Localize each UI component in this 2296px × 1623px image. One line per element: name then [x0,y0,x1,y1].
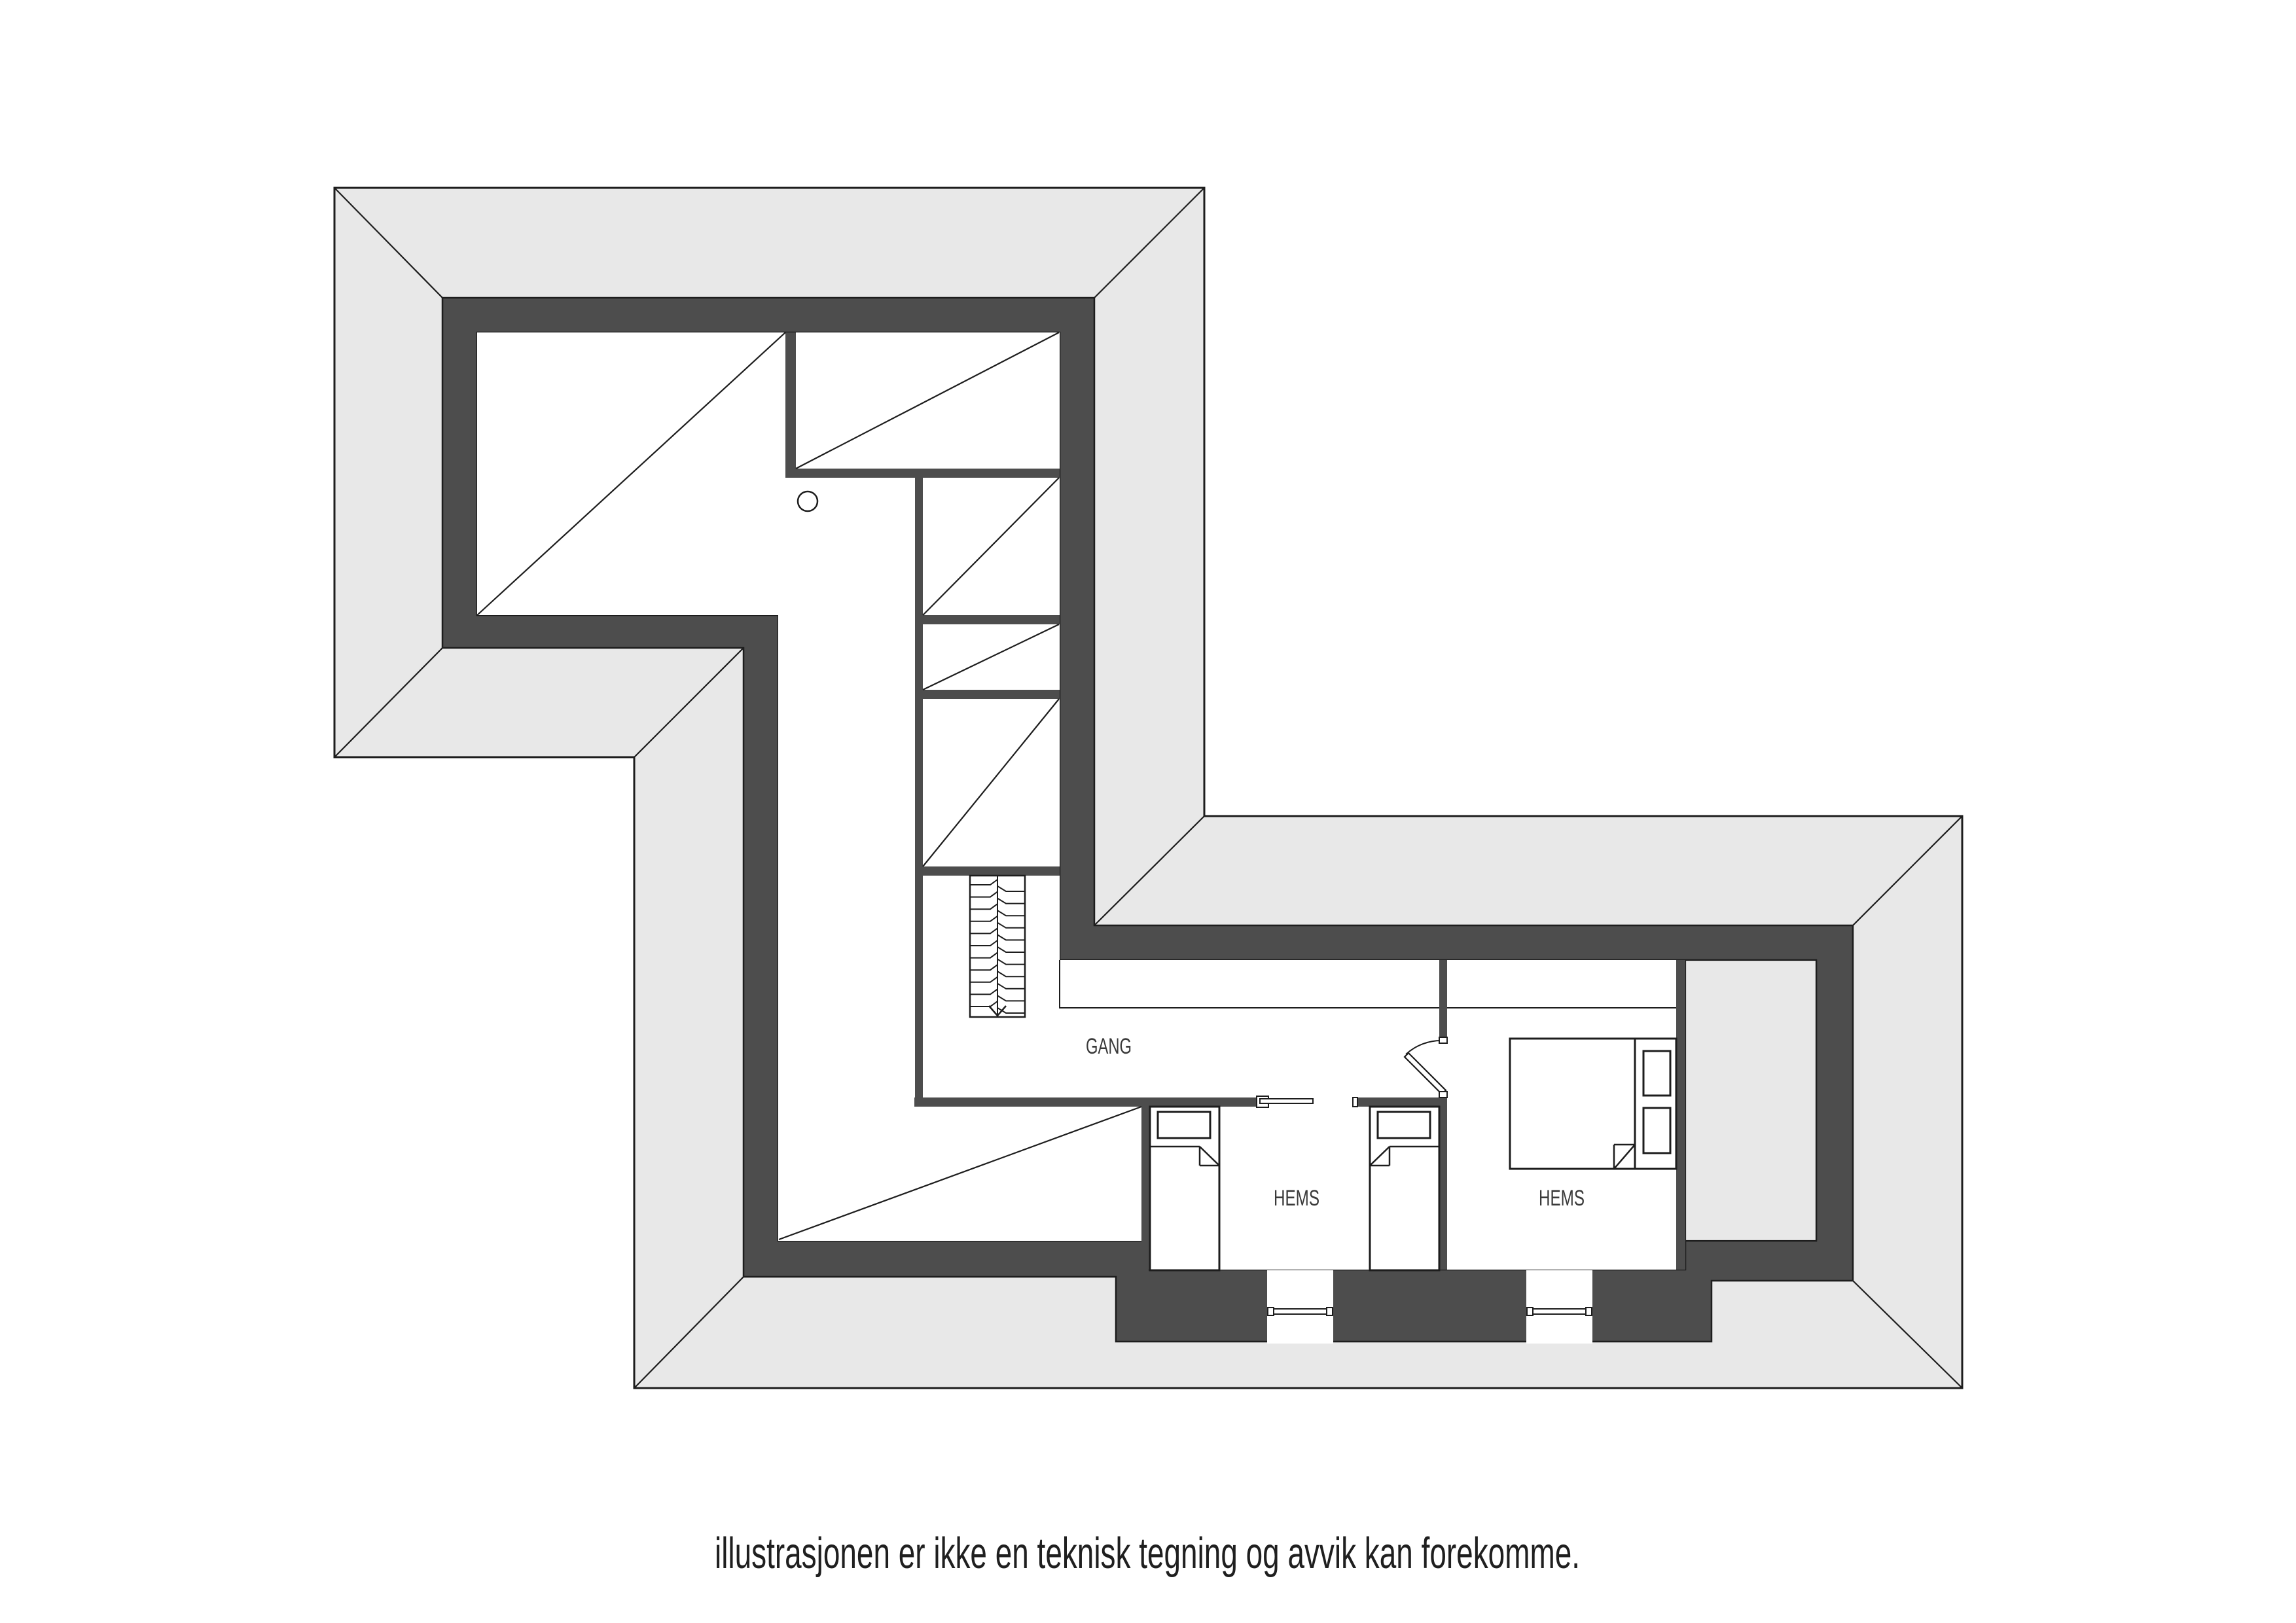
svg-text:HEMS: HEMS [1539,1186,1585,1211]
svg-text:GANG: GANG [1086,1034,1132,1059]
svg-text:HEMS: HEMS [1274,1186,1319,1211]
svg-text:illustrasjonen er ikke en tekn: illustrasjonen er ikke en teknisk tegnin… [715,1529,1580,1578]
